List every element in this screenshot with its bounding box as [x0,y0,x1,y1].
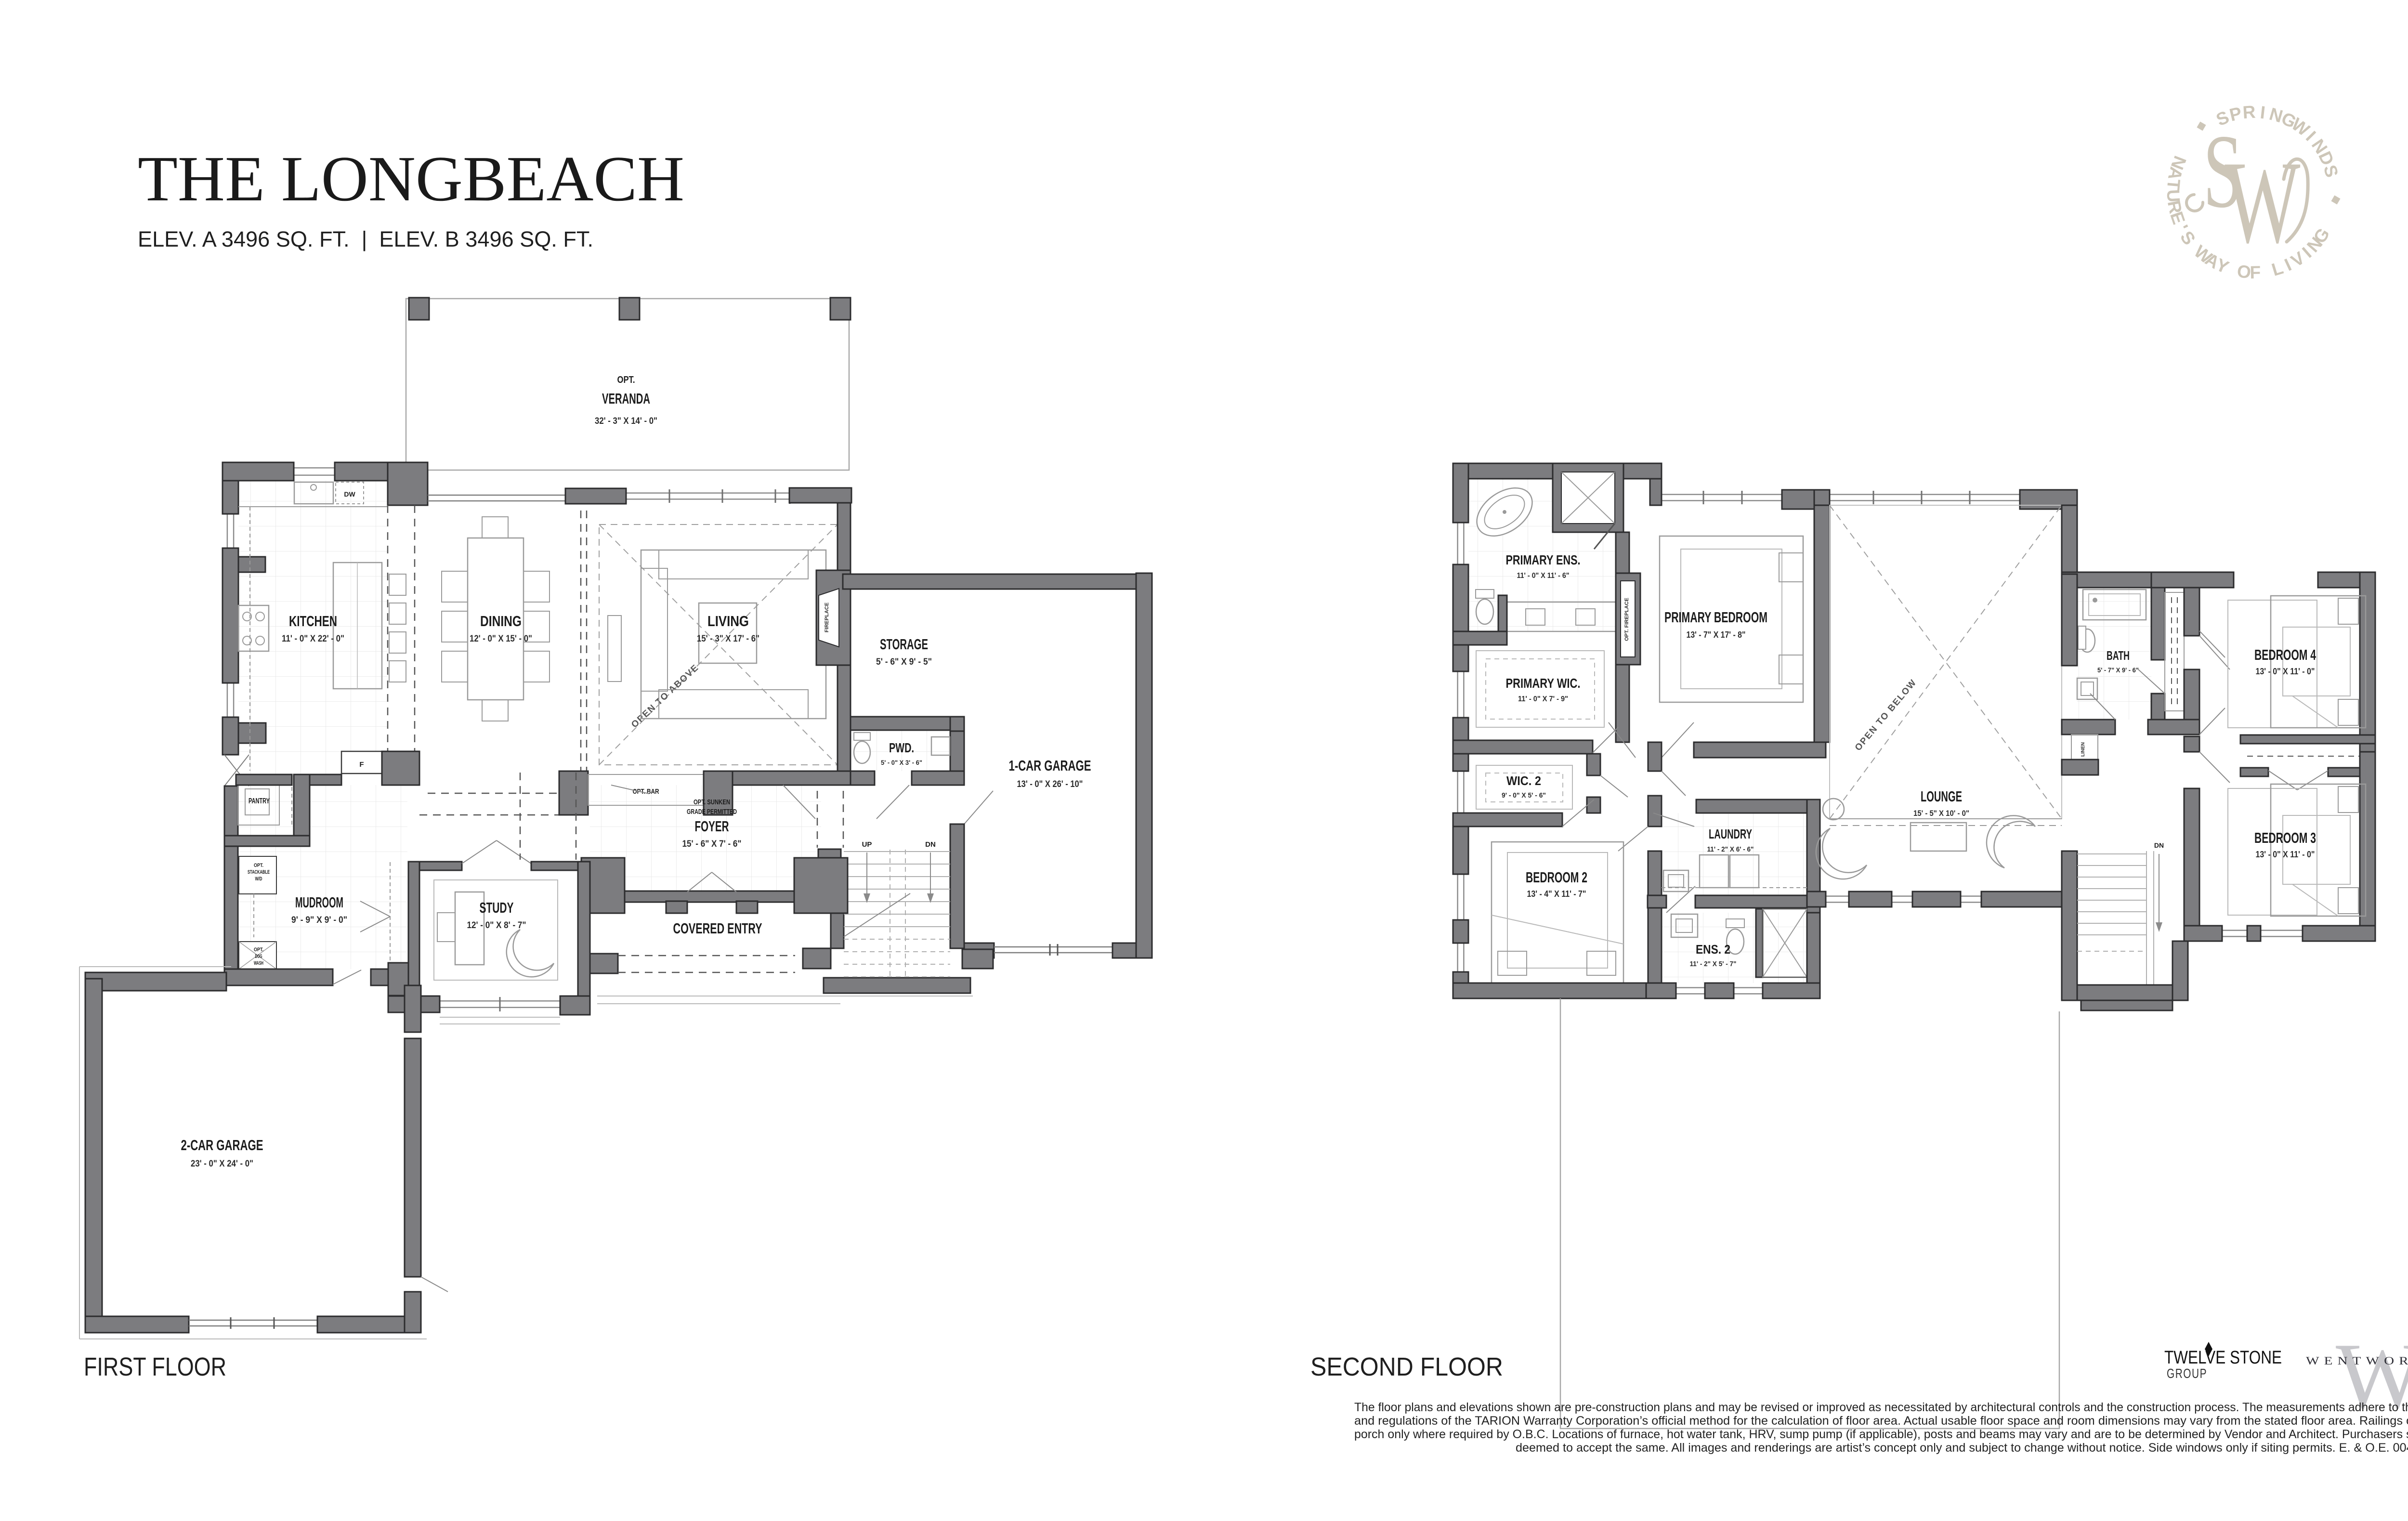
svg-text:OPT.: OPT. [254,947,263,953]
svg-text:MUDROOM: MUDROOM [295,894,343,911]
svg-text:FOYER: FOYER [695,818,729,835]
svg-text:PRIMARY BEDROOM: PRIMARY BEDROOM [1664,609,1767,626]
svg-text:23' - 0" X 24' - 0": 23' - 0" X 24' - 0" [191,1159,253,1169]
svg-text:deemed to accept the same. All: deemed to accept the same. All images an… [1516,1441,2408,1455]
svg-text:porch only where required by O: porch only where required by O.B.C. Loca… [1354,1428,2408,1441]
svg-text:GRADE PERMITTED: GRADE PERMITTED [687,808,737,816]
svg-text:WIC. 2: WIC. 2 [1506,774,1541,788]
svg-text:12' - 0" X 15' - 0": 12' - 0" X 15' - 0" [470,634,532,644]
svg-text:OPT.: OPT. [254,863,263,868]
svg-text:15' - 3" X 17' - 6": 15' - 3" X 17' - 6" [697,634,759,644]
svg-text:13' - 0" X 26' - 10": 13' - 0" X 26' - 10" [1017,779,1083,789]
svg-text:5' - 0" X 3' - 6": 5' - 0" X 3' - 6" [881,759,922,766]
svg-text:LIVING: LIVING [707,613,749,629]
svg-text:OPT. FIREPLACE: OPT. FIREPLACE [1624,598,1630,641]
svg-text:PWD.: PWD. [889,740,914,755]
svg-text:BEDROOM 3: BEDROOM 3 [2254,829,2316,846]
svg-text:PRIMARY ENS.: PRIMARY ENS. [1506,552,1581,567]
svg-text:THE LONGBEACH: THE LONGBEACH [138,143,684,214]
svg-text:UP: UP [862,840,872,849]
svg-text:and regulations of the TARION: and regulations of the TARION Warranty C… [1354,1414,2408,1428]
svg-text:9' - 0" X 5' - 6": 9' - 0" X 5' - 6" [1502,791,1546,800]
svg-text:W/D: W/D [255,876,262,882]
svg-text:DW: DW [344,490,355,498]
svg-text:STACKABLE: STACKABLE [248,869,270,875]
svg-text:5' - 7" X 9' - 6": 5' - 7" X 9' - 6" [2097,666,2139,674]
svg-text:W: W [2225,137,2300,267]
svg-text:COVERED ENTRY: COVERED ENTRY [673,920,762,937]
svg-text:13' - 7" X 17' - 8": 13' - 7" X 17' - 8" [1687,630,1746,640]
svg-text:R: R [2242,102,2256,123]
svg-text:KITCHEN: KITCHEN [289,613,337,629]
svg-text:F: F [359,760,364,769]
svg-text:DN: DN [925,840,936,849]
svg-text:15' - 6" X 7' - 6": 15' - 6" X 7' - 6" [682,839,742,849]
svg-text:STUDY: STUDY [480,899,514,916]
svg-text:WASH: WASH [254,960,263,966]
svg-text:OPT. BAR: OPT. BAR [633,787,659,796]
svg-text:13' - 4" X 11' - 7": 13' - 4" X 11' - 7" [1527,889,1586,899]
svg-text:2-CAR GARAGE: 2-CAR GARAGE [181,1137,263,1154]
svg-text:LINEN: LINEN [2081,742,2086,757]
svg-text:LOUNGE: LOUNGE [1921,788,1962,805]
svg-text:VERANDA: VERANDA [602,390,650,407]
svg-text:11' - 2" X 6' - 6": 11' - 2" X 6' - 6" [1707,845,1754,853]
svg-text:OPT.: OPT. [617,375,635,385]
svg-text:1-CAR GARAGE: 1-CAR GARAGE [1009,757,1091,774]
svg-text:9' - 9" X 9' - 0": 9' - 9" X 9' - 0" [291,915,347,925]
svg-text:OPT. SUNKEN: OPT. SUNKEN [694,798,730,806]
svg-text:13' - 0" X 11' - 0": 13' - 0" X 11' - 0" [2256,850,2315,859]
svg-text:PANTRY: PANTRY [249,797,270,805]
svg-text:LAUNDRY: LAUNDRY [1709,826,1752,841]
svg-text:15' - 5" X 10' - 0": 15' - 5" X 10' - 0" [1913,809,1969,818]
svg-text:ELEV. A 3496 SQ. FT. | ELEV.: ELEV. A 3496 SQ. FT. | ELEV. B 3496 SQ. … [138,227,593,251]
svg-text:DN: DN [2154,841,2164,849]
svg-text:11' - 0" X 11' - 6": 11' - 0" X 11' - 6" [1517,572,1570,580]
svg-text:11' - 0" X 7' - 9": 11' - 0" X 7' - 9" [1518,695,1568,703]
svg-text:32' - 3" X 14' - 0": 32' - 3" X 14' - 0" [595,416,657,426]
svg-text:SECOND FLOOR: SECOND FLOOR [1310,1352,1503,1381]
svg-text:DINING: DINING [480,613,522,629]
svg-text:12' - 0" X 8' - 7": 12' - 0" X 8' - 7" [467,920,526,931]
svg-text:FIREPLACE: FIREPLACE [824,603,830,632]
svg-text:TWELVE STONE: TWELVE STONE [2164,1348,2282,1368]
svg-text:BEDROOM 4: BEDROOM 4 [2254,646,2316,663]
svg-text:DOG: DOG [255,954,262,959]
svg-text:WENTWORTH: WENTWORTH [2306,1355,2408,1367]
svg-text:BEDROOM 2: BEDROOM 2 [1526,869,1587,886]
svg-text:STORAGE: STORAGE [880,636,928,653]
svg-text:BATH: BATH [2107,648,2130,663]
svg-text:13' - 0" X 11' - 0": 13' - 0" X 11' - 0" [2256,667,2315,676]
svg-text:FIRST FLOOR: FIRST FLOOR [84,1352,226,1381]
svg-text:11' - 2" X 5' - 7": 11' - 2" X 5' - 7" [1690,960,1737,968]
svg-text:GROUP: GROUP [2167,1366,2207,1381]
svg-text:5' - 6" X 9' - 5": 5' - 6" X 9' - 5" [876,657,932,667]
svg-text:11' - 0" X 22' - 0": 11' - 0" X 22' - 0" [282,634,344,644]
svg-text:The floor plans and elevations: The floor plans and elevations shown are… [1354,1401,2408,1414]
svg-text:ENS. 2: ENS. 2 [1696,942,1730,957]
svg-text:PRIMARY WIC.: PRIMARY WIC. [1506,676,1581,691]
